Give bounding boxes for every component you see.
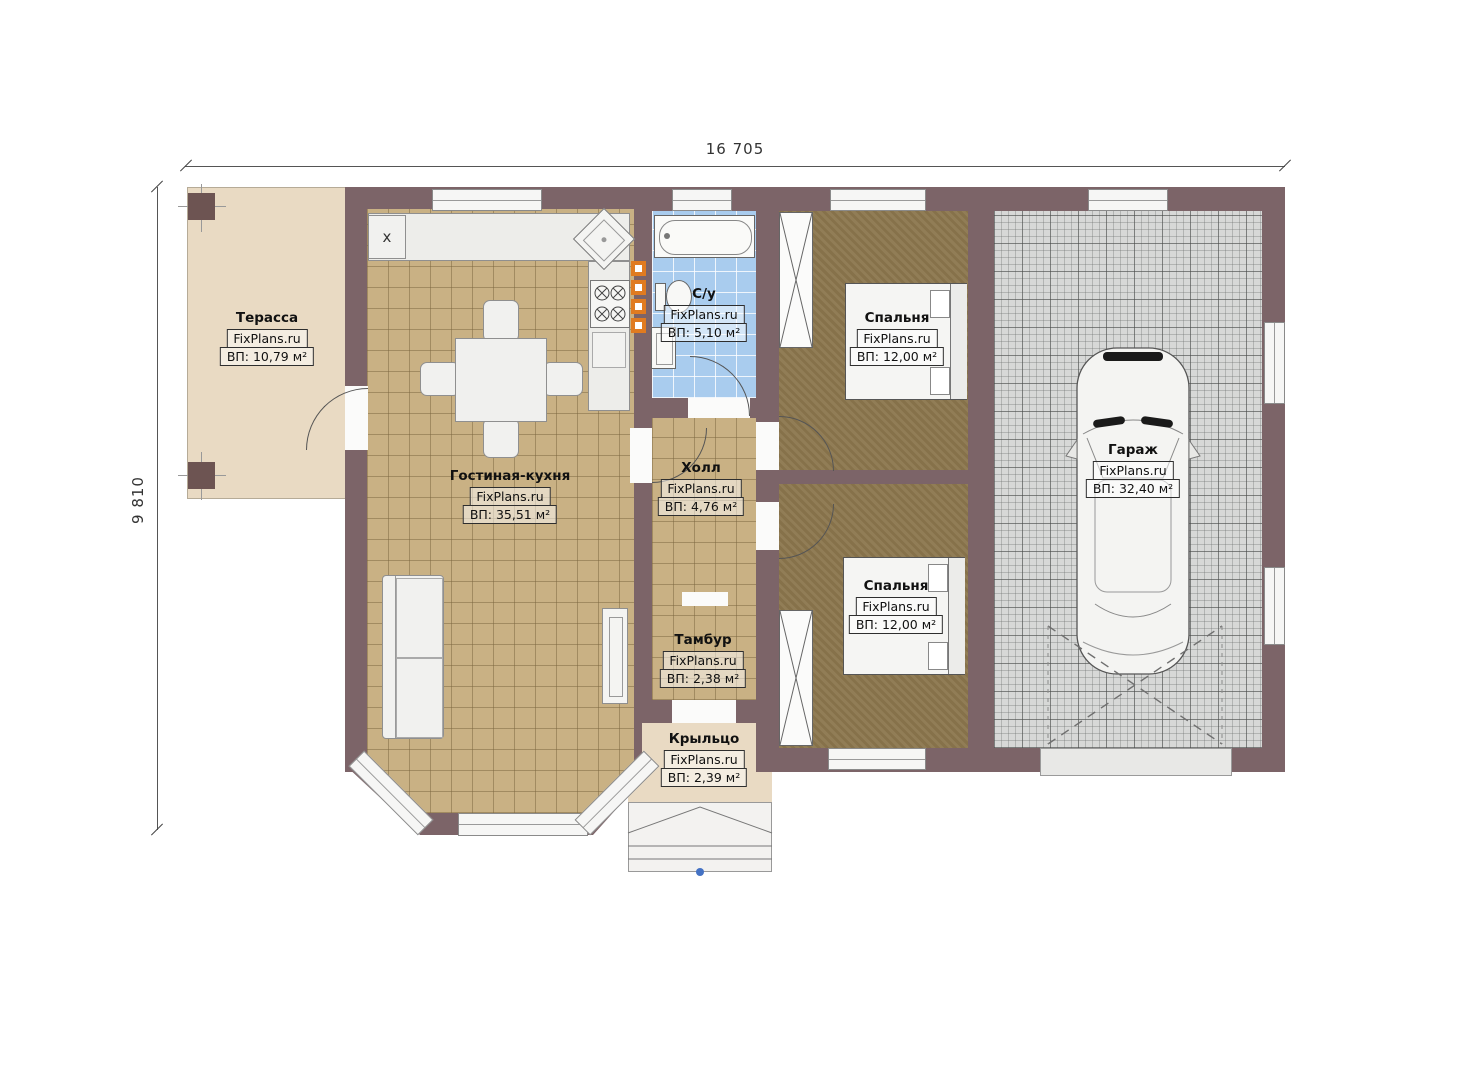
room-area: ВП: 12,00 м² <box>849 615 943 634</box>
room-label-hall: Холл FixPlans.ru ВП: 4,76 м² <box>658 460 744 516</box>
room-name: Спальня <box>864 578 929 594</box>
room-brand: FixPlans.ru <box>469 487 550 506</box>
room-label-terrace: Терасса FixPlans.ru ВП: 10,79 м² <box>220 310 314 366</box>
room-brand: FixPlans.ru <box>660 479 741 498</box>
room-name: Терасса <box>236 310 298 326</box>
floor-plan-canvas: 16 705 9 810 x <box>0 0 1474 1080</box>
room-brand: FixPlans.ru <box>1092 461 1173 480</box>
room-label-porch: Крыльцо FixPlans.ru ВП: 2,39 м² <box>661 731 747 787</box>
room-brand: FixPlans.ru <box>663 750 744 769</box>
room-area: ВП: 5,10 м² <box>661 323 747 342</box>
room-label-garage: Гараж FixPlans.ru ВП: 32,40 м² <box>1086 442 1180 498</box>
room-name: Гараж <box>1108 442 1158 458</box>
room-brand: FixPlans.ru <box>662 651 743 670</box>
room-label-bedroom-bottom: Спальня FixPlans.ru ВП: 12,00 м² <box>849 578 943 634</box>
plan-overlay-lines <box>0 0 1474 1080</box>
room-name: Тамбур <box>674 632 731 648</box>
room-brand: FixPlans.ru <box>226 329 307 348</box>
room-label-bedroom-top: Спальня FixPlans.ru ВП: 12,00 м² <box>850 310 944 366</box>
room-area: ВП: 4,76 м² <box>658 497 744 516</box>
room-name: Гостиная-кухня <box>450 468 571 484</box>
room-area: ВП: 35,51 м² <box>463 505 557 524</box>
room-name: С/у <box>692 286 716 302</box>
room-area: ВП: 2,39 м² <box>661 768 747 787</box>
room-brand: FixPlans.ru <box>855 597 936 616</box>
room-area: ВП: 12,00 м² <box>850 347 944 366</box>
room-brand: FixPlans.ru <box>856 329 937 348</box>
room-brand: FixPlans.ru <box>663 305 744 324</box>
porch-marker-dot <box>696 868 704 876</box>
room-label-tambur: Тамбур FixPlans.ru ВП: 2,38 м² <box>660 632 746 688</box>
room-area: ВП: 10,79 м² <box>220 347 314 366</box>
room-name: Спальня <box>865 310 930 326</box>
room-name: Крыльцо <box>669 731 740 747</box>
room-area: ВП: 2,38 м² <box>660 669 746 688</box>
room-label-living-kitchen: Гостиная-кухня FixPlans.ru ВП: 35,51 м² <box>450 468 571 524</box>
room-label-bathroom: С/у FixPlans.ru ВП: 5,10 м² <box>661 286 747 342</box>
room-name: Холл <box>681 460 720 476</box>
room-area: ВП: 32,40 м² <box>1086 479 1180 498</box>
